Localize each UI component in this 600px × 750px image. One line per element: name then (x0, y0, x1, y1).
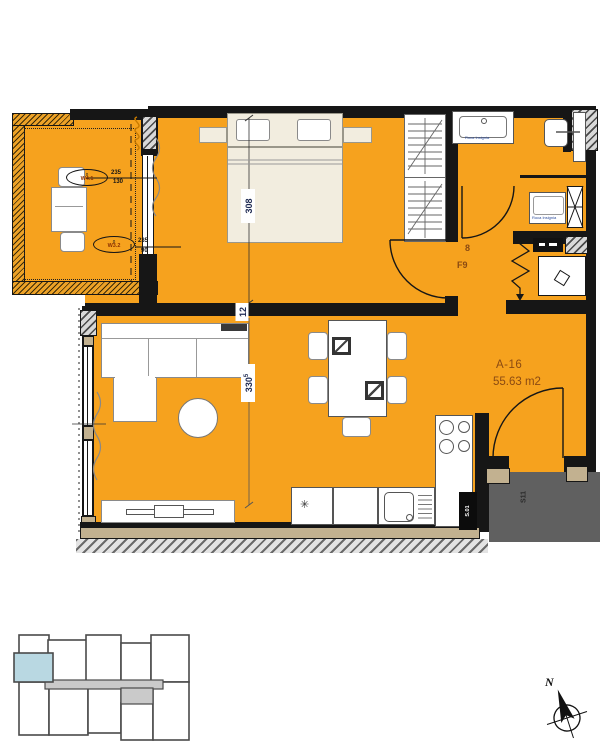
balcony-wall-bottom (12, 281, 158, 295)
shaft-label: S.01 (465, 505, 471, 516)
sofa-back-line (102, 338, 248, 339)
pier-tan-living (83, 336, 94, 346)
north-label: N (544, 675, 555, 689)
hall-code: F9 (457, 260, 468, 270)
nightstand-left (199, 127, 227, 143)
pier-hatch-bedroom (142, 116, 157, 150)
key-plan (6, 625, 196, 745)
dining-chair-right-2 (387, 376, 407, 404)
pillow-left (236, 119, 270, 141)
tv-console-box (154, 505, 184, 518)
north-arrow: N (533, 672, 597, 748)
dining-chair-left-1 (308, 332, 328, 360)
balcony-table (51, 187, 87, 232)
corridor-label: S11 (521, 491, 528, 503)
north-circle (551, 702, 584, 735)
lintel-box (533, 238, 563, 252)
stove-burner-1 (439, 420, 454, 435)
dining-table (328, 320, 387, 417)
placemat-1 (332, 337, 351, 355)
keyplan-room (86, 635, 121, 682)
bath-vanity-faucet (481, 118, 487, 124)
bath-half-wall (520, 175, 586, 178)
wall-bedroom-east-stub (445, 296, 458, 316)
kitchen-counter-mid (333, 487, 378, 525)
shower-column (567, 186, 583, 228)
dim-330: 3305 (244, 374, 254, 392)
keyplan-room (121, 643, 151, 682)
w41-num: 235 (111, 170, 121, 176)
dim-308: 308 (244, 198, 254, 213)
window-tag-w41: 0 W4.1 (66, 169, 108, 186)
keyplan-corridor-branch (121, 688, 153, 704)
w32-den: 90 (141, 248, 148, 254)
entry-jamb-left (486, 468, 510, 484)
keyplan-room (48, 640, 88, 682)
dining-chair-right-1 (387, 332, 407, 360)
w32-id: W3.2 (108, 244, 121, 250)
wall-bedroom-west-pier-bottom (139, 254, 157, 310)
lintel-mark-2 (549, 243, 557, 246)
wall-hall-south (506, 300, 592, 314)
sofa-main (101, 323, 249, 378)
wall-right (586, 112, 596, 474)
sink-faucet (406, 514, 413, 521)
dim-12: 12 (238, 307, 248, 317)
stove-burner-3 (439, 439, 454, 454)
w32-num: 235 (138, 238, 148, 244)
keyplan-room (151, 635, 189, 682)
keyplan-room (88, 687, 121, 733)
floor-plan-sheet: Roca Insignia Roca Insignia ✳ S.01 (0, 0, 600, 750)
dining-chair-left-2 (308, 376, 328, 404)
keyplan-room (121, 703, 153, 740)
keyplan-room (19, 635, 49, 682)
sofa-chaise-seam (115, 376, 155, 379)
keyplan-room (19, 682, 49, 735)
pier-hatch-living-top (80, 310, 97, 336)
wall-top (148, 106, 596, 118)
bathtub-inner (533, 196, 564, 215)
window-tag-w32: 0 W3.2 (93, 236, 135, 253)
keyplan-corridor (45, 680, 163, 689)
nightstand-right (343, 127, 372, 143)
living-window-2 (83, 440, 93, 516)
toilet-bowl (544, 119, 568, 147)
w41-id: W4.1 (81, 177, 94, 183)
duct-hatch-box (565, 236, 588, 254)
sofa-chaise (113, 377, 157, 422)
neighbor-hatch-bottom (76, 539, 488, 553)
stove-burner-2 (458, 421, 470, 433)
wardrobe (404, 114, 446, 242)
sofa-cushion-div-1 (148, 339, 149, 377)
sofa-tag (221, 324, 247, 331)
entry-jamb-right (566, 466, 588, 482)
balcony-chair-bottom (60, 232, 85, 252)
unit-area: 55.63 m2 (493, 376, 541, 388)
keyplan-highlighted-unit (14, 653, 53, 682)
unit-code: A-16 (496, 359, 522, 371)
pillow-right (297, 119, 331, 141)
wall-bottom-tan (80, 527, 480, 539)
lintel-mark-1 (539, 243, 545, 246)
balcony-wall-top (12, 113, 74, 126)
dining-chair-bottom (342, 417, 371, 437)
wardrobe-divider (405, 177, 445, 178)
living-window-1 (83, 346, 93, 426)
w41-den: 130 (113, 179, 123, 185)
living-window-2-mullion (87, 441, 88, 515)
north-needle (551, 687, 575, 723)
sink-drainboard (418, 495, 432, 521)
vanity-label: Roca Insignia (465, 135, 489, 140)
balcony-table-line (55, 206, 83, 207)
toilet-partition (573, 112, 586, 162)
tub-label: Roca Insignia (532, 215, 556, 220)
hall-symbol: 8 (465, 243, 470, 253)
keyplan-room (49, 687, 88, 735)
keyplan-room (153, 682, 189, 740)
placemat-2 (365, 381, 384, 400)
coffee-table (178, 398, 218, 438)
sofa-cushion-div-2 (196, 339, 197, 377)
living-window-1-mullion (87, 347, 88, 425)
pier-tan-living-mid (83, 426, 94, 440)
fridge (291, 487, 333, 525)
fridge-star-icon: ✳ (300, 498, 309, 511)
stove-burner-4 (458, 440, 470, 452)
